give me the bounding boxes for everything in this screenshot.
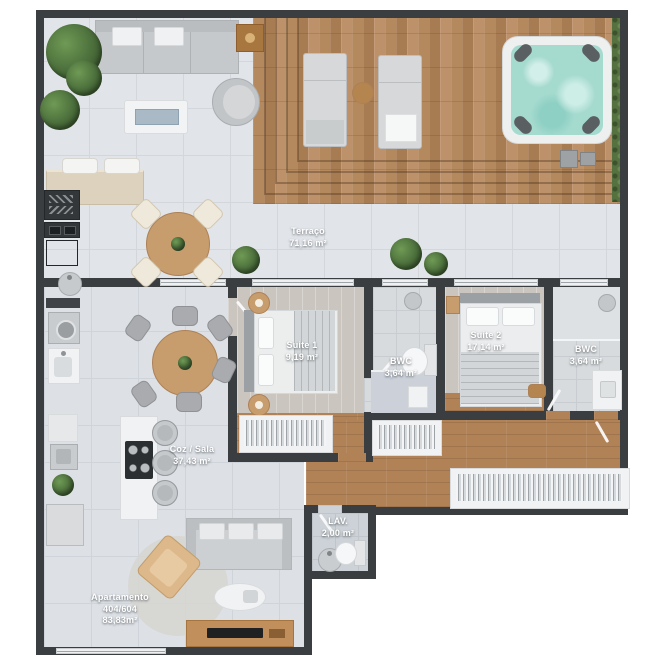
sofa-cushion (257, 523, 283, 540)
sun-lounger (378, 55, 422, 149)
apartment-area: 83,83m² (68, 615, 172, 627)
lamp (255, 299, 263, 307)
room-area: 37,43 m² (146, 456, 238, 468)
door-opening-suite2 (546, 411, 570, 420)
nightstand (248, 292, 270, 314)
bedroom-stool (528, 384, 546, 398)
counter-stool (62, 158, 98, 174)
sofa-cushion (112, 27, 142, 46)
room-area: 9,19 m² (258, 352, 346, 364)
counter-stool (104, 158, 140, 174)
faucet (327, 551, 332, 556)
grill-grate (49, 195, 73, 203)
lounger-foot (306, 120, 344, 144)
burner (64, 226, 76, 235)
room-area: 2,00 m² (306, 528, 370, 540)
room-area: 3,64 m² (366, 368, 436, 380)
pillow (502, 307, 535, 326)
wardrobe-clothes (456, 474, 622, 501)
window-bwc1 (382, 279, 428, 286)
dining-chair (176, 392, 202, 412)
room-name: Suite 1 (258, 340, 346, 352)
washing-machine (48, 312, 80, 344)
washer-door (56, 320, 76, 340)
sink-basin (600, 381, 616, 398)
room-area: 3,64 m² (552, 356, 620, 368)
table-centerpiece-plant (178, 356, 192, 370)
door-opening-bwc2 (594, 411, 618, 420)
room-name: Terraço (262, 226, 354, 238)
label-terraco: Terraço 71,16 m² (262, 226, 354, 249)
label-lav: LAV. 2,00 m² (306, 516, 370, 539)
bar-stool (152, 480, 178, 506)
terrace-coffee-table (124, 100, 188, 134)
terrace-sofa (95, 20, 239, 74)
label-suite2: Suite 2 17,14 m² (440, 330, 532, 353)
lounger-backrest-line (379, 82, 421, 83)
tv-console (186, 620, 294, 647)
label-bwc2: BWC 3,64 m² (552, 344, 620, 367)
hot-tub-control-panel (560, 150, 578, 168)
door-opening-lav (318, 505, 342, 513)
blanket (461, 352, 539, 404)
floor-plan: Terraço 71,16 m² Suite 1 9,19 m² BWC 3,6… (0, 0, 665, 665)
nightstand (446, 296, 460, 314)
label-coz-sala: Coz / Sala 37,43 m² (146, 444, 238, 467)
console-decor (269, 629, 285, 638)
apartment-name: Apartamento (68, 592, 172, 604)
bar-stool (152, 420, 178, 446)
apartment-unit: 404/604 (68, 604, 172, 616)
plant (52, 474, 74, 496)
terrace-round-chair (212, 78, 260, 126)
dishwasher (48, 414, 78, 442)
sun-lounger (303, 53, 347, 147)
kitchen-sink (50, 444, 78, 470)
hall-wardrobe-long (450, 468, 630, 509)
tv (207, 628, 263, 638)
dining-table (152, 330, 218, 396)
lounger-towel (385, 114, 417, 142)
living-sofa (186, 518, 292, 570)
plant (424, 252, 448, 276)
burner (49, 226, 61, 235)
label-apartamento: Apartamento 404/604 83,83m² (68, 592, 172, 627)
sink-basin (56, 449, 71, 464)
faucet (67, 275, 72, 280)
terrace-side-table (236, 24, 264, 52)
room-name: BWC (366, 356, 436, 368)
table-tray (135, 109, 179, 125)
toilet-bowl (335, 542, 357, 565)
shower-head (404, 292, 422, 310)
table-centerpiece-plant (171, 237, 185, 251)
wardrobe-clothes (377, 425, 435, 449)
laundry-tub (48, 348, 80, 384)
cabinet (46, 504, 84, 546)
headboard (460, 293, 540, 303)
tub-basin (54, 357, 72, 377)
wall-vent (46, 298, 80, 308)
outdoor-sink (58, 272, 82, 296)
headboard (244, 310, 254, 392)
shower-controls (408, 386, 428, 408)
nightstand (248, 394, 270, 416)
room-area: 71,16 m² (262, 238, 354, 250)
plant (232, 246, 260, 274)
label-bwc1: BWC 3,64 m² (366, 356, 436, 379)
sofa-cushion (228, 523, 254, 540)
window-bottom (56, 648, 166, 654)
window-bwc2 (560, 279, 608, 286)
hot-tub (502, 36, 612, 144)
lounger-side-table (352, 82, 374, 104)
room-name: Coz / Sala (146, 444, 238, 456)
plant (390, 238, 422, 270)
grill-grate (49, 206, 73, 214)
room-area: 17,14 m² (440, 342, 532, 354)
wall-top (36, 10, 628, 18)
lounger-backrest-line (304, 80, 346, 81)
wall-lav-bottom (304, 571, 376, 579)
shower-head (598, 294, 616, 312)
faucet (61, 351, 66, 356)
room-name: LAV. (306, 516, 370, 528)
room-name: BWC (552, 344, 620, 356)
room-name: Suite 2 (440, 330, 532, 342)
label-suite1: Suite 1 9,19 m² (258, 340, 346, 363)
barbecue-grill (44, 190, 80, 220)
hot-tub-control-panel (580, 152, 596, 166)
shower-glass (553, 339, 620, 341)
wardrobe-clothes (244, 420, 326, 446)
wall-lower-left-vertical (304, 571, 312, 655)
wall-right (620, 10, 628, 515)
table-tray (243, 590, 258, 603)
hall-wardrobe (372, 420, 442, 456)
dining-chair (172, 306, 198, 326)
grill-side-burners (44, 222, 80, 238)
plant (40, 90, 80, 130)
suite1-wardrobe (239, 415, 333, 453)
chair-seat (223, 85, 255, 119)
door-opening-suite1-entry (338, 453, 366, 462)
decor-bowl (245, 33, 255, 43)
wall-suite1-closet-bottom (228, 453, 338, 462)
window-suite2 (454, 279, 538, 286)
window-suite1 (252, 279, 354, 286)
bwc2-vanity (592, 370, 622, 410)
sofa-armrest (282, 519, 291, 569)
grill-cabinet (46, 240, 78, 266)
lamp (255, 401, 263, 409)
living-coffee-table (214, 583, 266, 611)
sofa-seat-divider (143, 32, 144, 73)
sofa-seat-divider (190, 32, 191, 73)
sofa-cushion (199, 523, 225, 540)
pillow (466, 307, 499, 326)
armchair-seat (148, 547, 189, 588)
plant (66, 60, 102, 96)
sofa-cushion (154, 27, 184, 46)
